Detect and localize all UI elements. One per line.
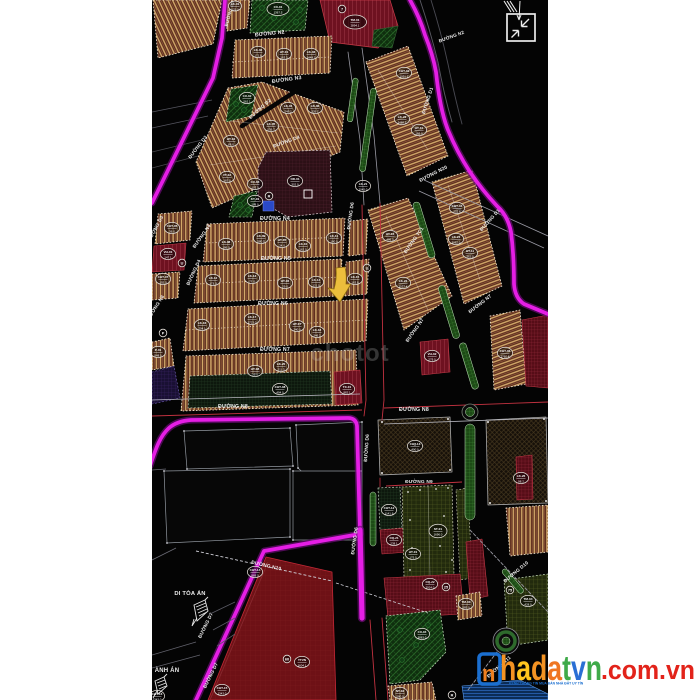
svg-text:LK-09: LK-09 xyxy=(257,234,266,238)
svg-text:TM-03: TM-03 xyxy=(462,600,471,604)
svg-text:HT-06: HT-06 xyxy=(281,279,290,283)
svg-text:1367.5: 1367.5 xyxy=(274,10,283,14)
svg-text:ĐƯỜNG N8: ĐƯỜNG N8 xyxy=(218,402,248,410)
svg-text:29.0: 29.0 xyxy=(282,284,288,288)
svg-text:TX-01: TX-01 xyxy=(343,385,352,389)
svg-text:CHT-12: CHT-12 xyxy=(384,506,395,510)
svg-text:CQ-21: CQ-21 xyxy=(389,536,398,540)
svg-text:211.3: 211.3 xyxy=(277,367,284,371)
svg-text:175.0: 175.0 xyxy=(409,555,417,559)
svg-text:302.0: 302.0 xyxy=(291,182,299,186)
svg-text:CX-04: CX-04 xyxy=(418,630,427,634)
svg-text:U: U xyxy=(366,267,369,271)
svg-text:428.0: 428.0 xyxy=(524,602,532,606)
svg-text:75: 75 xyxy=(508,589,512,593)
svg-text:CHT-14: CHT-14 xyxy=(250,568,261,572)
svg-text:580.0: 580.0 xyxy=(396,694,404,698)
svg-text:LK-13: LK-13 xyxy=(248,274,257,278)
svg-text:LK-20: LK-20 xyxy=(277,362,286,366)
svg-text:561.1: 561.1 xyxy=(243,99,251,103)
svg-text:188.0: 188.0 xyxy=(251,202,259,206)
svg-text:CHT-02: CHT-02 xyxy=(399,69,410,73)
svg-text:252.6: 252.6 xyxy=(453,209,461,213)
svg-text:LK-08: LK-08 xyxy=(222,240,231,244)
svg-text:CX-03: CX-03 xyxy=(251,180,260,184)
svg-text:186.0: 186.0 xyxy=(222,245,230,249)
svg-text:KT-01: KT-01 xyxy=(251,197,260,201)
svg-text:ST-01: ST-01 xyxy=(434,527,443,531)
svg-text:HT-01: HT-01 xyxy=(280,50,289,54)
svg-text:77.0: 77.0 xyxy=(249,279,255,283)
svg-text:CHT-07: CHT-07 xyxy=(158,275,169,279)
svg-text:R: R xyxy=(268,195,271,199)
svg-text:3488.3: 3488.3 xyxy=(398,120,407,124)
svg-text:279.0: 279.0 xyxy=(428,357,436,361)
svg-text:ĐƯỜNG N6: ĐƯỜNG N6 xyxy=(258,299,288,307)
svg-text:HT-02: HT-02 xyxy=(227,137,236,141)
svg-text:HT-04: HT-04 xyxy=(386,232,395,236)
svg-text:.com.vn: .com.vn xyxy=(601,655,695,685)
svg-text:1604.1: 1604.1 xyxy=(298,663,307,667)
svg-text:3062.0: 3062.0 xyxy=(452,240,461,244)
svg-text:CHT-15: CHT-15 xyxy=(217,686,228,690)
svg-text:CHT-03: CHT-03 xyxy=(452,204,463,208)
svg-text:490.0: 490.0 xyxy=(411,447,419,451)
svg-text:585.0: 585.0 xyxy=(462,605,470,609)
svg-text:486.0: 486.0 xyxy=(386,237,394,241)
svg-text:VH-02: VH-02 xyxy=(428,352,437,356)
svg-text:KÊNH THÔNG TIN MUA BÁN NHÀ ĐẤT: KÊNH THÔNG TIN MUA BÁN NHÀ ĐẤT UY TÍN xyxy=(509,681,584,686)
svg-text:238.1: 238.1 xyxy=(390,541,398,545)
svg-text:ĐƯỜNG N4: ĐƯỜNG N4 xyxy=(260,214,290,222)
svg-text:LK-23: LK-23 xyxy=(398,115,407,119)
svg-text:CHT-13: CHT-13 xyxy=(410,442,421,446)
svg-text:163.0: 163.0 xyxy=(223,178,231,182)
svg-text:R: R xyxy=(451,694,454,698)
svg-text:DI TÒA ÁN: DI TÒA ÁN xyxy=(174,589,205,597)
svg-text:CHT-06: CHT-06 xyxy=(500,349,511,353)
svg-text:NT-02: NT-02 xyxy=(396,689,405,693)
svg-text:LK-15: LK-15 xyxy=(351,275,360,279)
svg-text:LK-21: LK-21 xyxy=(359,182,368,186)
svg-text:1448.7: 1448.7 xyxy=(307,55,316,59)
svg-text:539.7: 539.7 xyxy=(311,109,319,113)
svg-text:LK-10: LK-10 xyxy=(299,242,308,246)
svg-text:125.0: 125.0 xyxy=(231,7,239,11)
svg-text:ĐƯỜNG N8: ĐƯỜNG N8 xyxy=(399,405,429,413)
svg-text:n: n xyxy=(482,661,495,686)
svg-text:2723.0: 2723.0 xyxy=(248,320,257,324)
svg-text:HT-01: HT-01 xyxy=(409,550,418,554)
svg-text:LK-05: LK-05 xyxy=(267,122,276,126)
svg-text:494.0: 494.0 xyxy=(276,390,284,394)
svg-text:VT-02: VT-02 xyxy=(223,173,232,177)
svg-text:HT-10: HT-10 xyxy=(415,126,424,130)
svg-text:TM-04: TM-04 xyxy=(524,597,533,601)
svg-text:163.3: 163.3 xyxy=(280,55,288,59)
svg-text:LK-11: LK-11 xyxy=(330,234,339,238)
svg-text:LK-16: LK-16 xyxy=(198,321,207,325)
svg-text:LK-22: LK-22 xyxy=(399,279,408,283)
svg-text:VH-01: VH-01 xyxy=(164,250,173,254)
svg-text:HT-07: HT-07 xyxy=(293,322,302,326)
svg-text:ĐƯỜNG N5: ĐƯỜNG N5 xyxy=(261,254,291,262)
svg-text:163.8: 163.8 xyxy=(351,280,359,284)
svg-text:HT-11: HT-11 xyxy=(466,249,475,253)
svg-text:U: U xyxy=(181,262,184,266)
svg-text:580.0: 580.0 xyxy=(257,239,265,243)
svg-text:968.0: 968.0 xyxy=(251,573,259,577)
svg-text:TM-01: TM-01 xyxy=(351,18,360,22)
svg-text:CX-02: CX-02 xyxy=(243,94,252,98)
svg-text:749.2: 749.2 xyxy=(284,109,292,113)
svg-text:CHT-16: CHT-16 xyxy=(152,692,163,696)
svg-text:36.0: 36.0 xyxy=(169,229,175,233)
svg-text:P: P xyxy=(162,332,165,336)
svg-text:2894.1: 2894.1 xyxy=(351,23,360,27)
svg-text:948.0: 948.0 xyxy=(154,353,162,357)
svg-text:25: 25 xyxy=(444,586,448,590)
svg-text:LK-14: LK-14 xyxy=(312,278,321,282)
svg-text:7: 7 xyxy=(341,8,343,12)
svg-text:2045.0: 2045.0 xyxy=(359,187,368,191)
svg-text:P-01: P-01 xyxy=(155,348,162,352)
svg-text:TTVN: TTVN xyxy=(298,658,307,662)
svg-text:HT-05: HT-05 xyxy=(278,238,287,242)
svg-text:180.0: 180.0 xyxy=(330,239,338,243)
svg-text:166.0: 166.0 xyxy=(415,131,423,135)
svg-text:LK-26: LK-26 xyxy=(517,474,526,478)
svg-text:34.0: 34.0 xyxy=(279,243,285,247)
svg-text:171.0: 171.0 xyxy=(209,281,217,285)
svg-text:98.2: 98.2 xyxy=(518,479,524,483)
svg-text:197.3: 197.3 xyxy=(251,185,259,189)
svg-text:LK-18: LK-18 xyxy=(313,328,322,332)
svg-text:CHT-08: CHT-08 xyxy=(275,385,286,389)
svg-text:LK-06: LK-06 xyxy=(311,104,320,108)
svg-text:ÀNH ÁN: ÀNH ÁN xyxy=(155,667,180,674)
svg-text:ĐƯỜNG N7: ĐƯỜNG N7 xyxy=(260,345,290,353)
svg-text:539.7: 539.7 xyxy=(267,127,275,131)
svg-text:1537.4: 1537.4 xyxy=(399,284,408,288)
svg-text:88.0: 88.0 xyxy=(228,142,234,146)
svg-text:LK-03: LK-03 xyxy=(307,50,316,54)
svg-text:121.0: 121.0 xyxy=(312,283,320,287)
svg-text:CQ-22: CQ-22 xyxy=(425,580,434,584)
svg-text:704.1: 704.1 xyxy=(198,326,206,330)
svg-text:LK-17: LK-17 xyxy=(248,315,257,319)
svg-text:LK-01: LK-01 xyxy=(231,2,240,6)
svg-text:2760.8: 2760.8 xyxy=(501,354,510,358)
svg-text:LK-02: LK-02 xyxy=(254,48,263,52)
svg-text:1991.2: 1991.2 xyxy=(400,74,409,78)
svg-text:39.0: 39.0 xyxy=(252,372,258,376)
svg-text:OD-01: OD-01 xyxy=(290,177,299,181)
svg-text:chotot: chotot xyxy=(310,340,389,367)
svg-text:LK-24: LK-24 xyxy=(452,235,461,239)
svg-text:LK-12: LK-12 xyxy=(209,276,218,280)
svg-text:1343.0: 1343.0 xyxy=(218,691,227,695)
svg-text:340.0: 340.0 xyxy=(293,327,301,331)
svg-text:171.8: 171.8 xyxy=(254,53,262,57)
svg-text:362.0: 362.0 xyxy=(466,254,474,258)
svg-text:2924.0: 2924.0 xyxy=(426,585,435,589)
svg-text:162.0: 162.0 xyxy=(299,247,307,251)
svg-text:346.2: 346.2 xyxy=(313,333,321,337)
svg-text:192.0: 192.0 xyxy=(159,280,167,284)
svg-text:CHT-05: CHT-05 xyxy=(167,224,178,228)
svg-text:982.1: 982.1 xyxy=(343,390,351,394)
svg-text:1696.0: 1696.0 xyxy=(434,532,443,536)
svg-text:CX-01: CX-01 xyxy=(274,5,283,9)
svg-text:3883.0: 3883.0 xyxy=(418,635,427,639)
svg-text:LK-04: LK-04 xyxy=(284,104,293,108)
svg-text:147.1: 147.1 xyxy=(164,255,172,259)
svg-text:1141.9: 1141.9 xyxy=(385,511,394,515)
svg-text:60: 60 xyxy=(285,658,289,662)
svg-text:HT-08: HT-08 xyxy=(251,367,260,371)
